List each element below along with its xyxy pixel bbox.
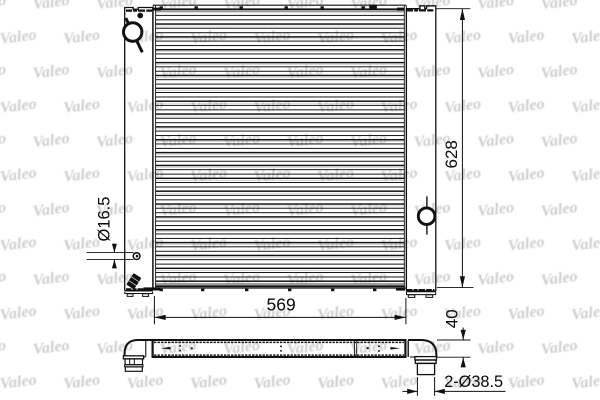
- svg-text:628: 628: [442, 140, 461, 168]
- svg-text:2-Ø38.5: 2-Ø38.5: [444, 373, 503, 391]
- svg-text:40: 40: [442, 309, 461, 328]
- svg-text:Ø16.5: Ø16.5: [96, 197, 114, 242]
- svg-text:569: 569: [267, 295, 296, 315]
